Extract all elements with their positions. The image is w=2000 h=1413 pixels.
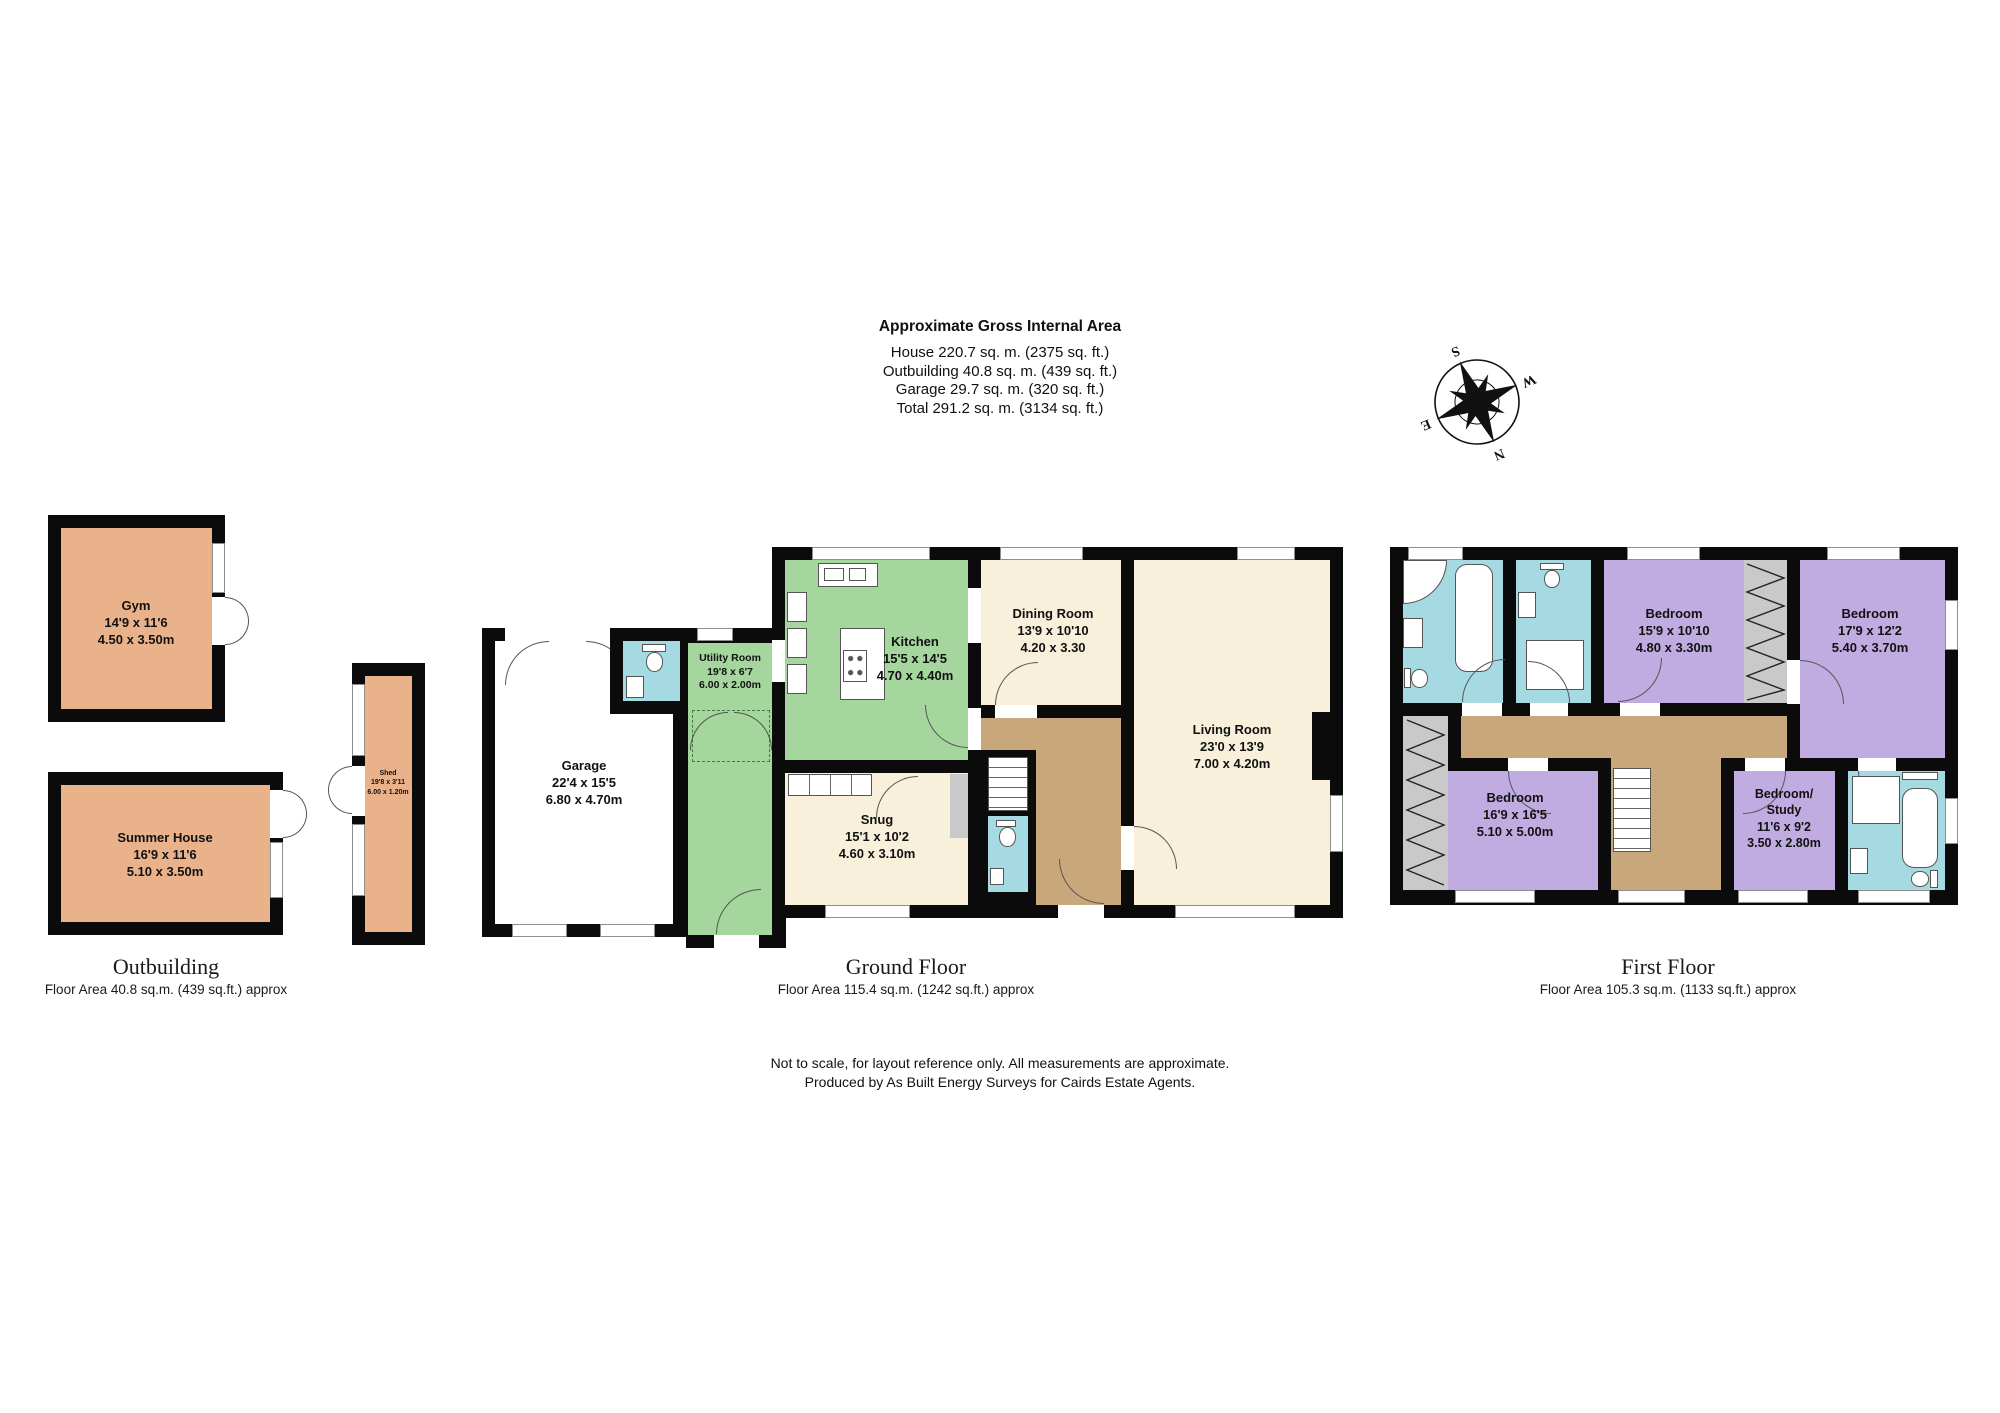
door-opening xyxy=(714,935,759,948)
room-dims-m: 6.00 x 2.00m xyxy=(670,679,790,693)
towel-rail-icon xyxy=(1902,772,1938,780)
landing-floor xyxy=(1461,716,1787,758)
door-arc xyxy=(225,621,249,645)
disclaimer-line1: Not to scale, for layout reference only.… xyxy=(600,1054,1400,1073)
compass-rose-icon: N E S W xyxy=(1407,332,1547,472)
kitchen-unit-icon xyxy=(787,592,807,622)
compass-e-label: E xyxy=(1418,415,1432,432)
toilet-icon xyxy=(1540,563,1564,570)
bedroom1-label: Bedroom 15'9 x 10'10 4.80 x 3.30m xyxy=(1594,606,1754,657)
door-arc xyxy=(283,814,307,838)
room-dims-ft: 13'9 x 10'10 xyxy=(973,623,1133,640)
door-opening xyxy=(1121,826,1134,870)
room-dims-ft: 14'9 x 11'6 xyxy=(56,615,216,632)
shed-label: Shed 19'8 x 3'11 6.00 x 1.20m xyxy=(358,769,418,797)
room-dims-ft: 15'1 x 10'2 xyxy=(797,829,957,846)
room-name: Utility Room xyxy=(670,652,790,666)
room-dims-m: 7.00 x 4.20m xyxy=(1152,756,1312,773)
compass-n-label: N xyxy=(1491,445,1506,463)
compass-w-label: W xyxy=(1519,371,1538,390)
kitchen-unit-icon xyxy=(787,628,807,658)
kitchen-unit-icon xyxy=(787,664,807,694)
window xyxy=(1000,547,1083,560)
area-garage: Garage 29.7 sq. m. (320 sq. ft.) xyxy=(700,381,1300,400)
room-name: Living Room xyxy=(1152,722,1312,739)
compass-s-label: S xyxy=(1449,342,1462,359)
sink-icon xyxy=(990,868,1004,885)
window xyxy=(1738,890,1808,903)
window xyxy=(1827,547,1900,560)
room-dims-m: 4.70 x 4.40m xyxy=(835,668,995,685)
gym-label: Gym 14'9 x 11'6 4.50 x 3.50m xyxy=(56,598,216,649)
room-dims-ft: 11'6 x 9'2 xyxy=(1714,819,1854,835)
room-name: Bedroom/ xyxy=(1714,786,1854,802)
room-dims-m: 4.60 x 3.10m xyxy=(797,846,957,863)
room-dims-ft: 22'4 x 15'5 xyxy=(504,775,664,792)
room-dims-m: 4.50 x 3.50m xyxy=(56,632,216,649)
first-floor-area-label: Floor Area 105.3 sq.m. (1133 sq.ft.) app… xyxy=(1468,982,1868,997)
room-name: Bedroom xyxy=(1594,606,1754,623)
room-name: Garage xyxy=(504,758,664,775)
toilet-icon xyxy=(1930,870,1938,888)
room-shed-floor xyxy=(365,676,412,932)
room-dims-ft: 19'8 x 3'11 xyxy=(358,778,418,787)
sink-bowl-icon xyxy=(849,568,866,581)
room-dims-m: 4.80 x 3.30m xyxy=(1594,640,1754,657)
outbuilding-area-label: Floor Area 40.8 sq.m. (439 sq.ft.) appro… xyxy=(0,982,332,997)
door-arc xyxy=(328,766,352,790)
front-door-opening xyxy=(1058,905,1104,918)
room-name: Snug xyxy=(797,812,957,829)
toilet-icon xyxy=(1411,669,1428,688)
room-dims-m: 5.40 x 3.70m xyxy=(1790,640,1950,657)
sink-icon xyxy=(1518,592,1536,618)
window xyxy=(697,628,733,641)
window xyxy=(600,924,655,937)
toilet-icon xyxy=(999,827,1016,847)
door-arc xyxy=(283,790,307,814)
room-dims-m: 5.10 x 3.50m xyxy=(85,864,245,881)
room-name: Bedroom xyxy=(1435,790,1595,807)
door-opening xyxy=(1858,758,1896,771)
window xyxy=(1330,795,1343,852)
room-dims-m: 4.20 x 3.30 xyxy=(973,640,1133,657)
room-name: Shed xyxy=(358,769,418,778)
window xyxy=(1455,890,1535,903)
window xyxy=(352,684,365,756)
stairs xyxy=(988,757,1028,811)
door-opening xyxy=(968,708,981,750)
window xyxy=(1618,890,1685,903)
sink-icon xyxy=(626,676,644,698)
window xyxy=(352,824,365,896)
door-opening xyxy=(1508,758,1548,771)
room-name: Gym xyxy=(56,598,216,615)
stairs xyxy=(1613,768,1651,852)
room-dims-ft: 23'0 x 13'9 xyxy=(1152,739,1312,756)
window xyxy=(1858,890,1930,903)
door-opening xyxy=(1787,660,1800,704)
utility-room-label: Utility Room 19'8 x 6'7 6.00 x 2.00m xyxy=(670,652,790,693)
chimney-breast xyxy=(1312,712,1343,780)
toilet-icon xyxy=(1544,570,1560,588)
window xyxy=(1408,547,1463,560)
ground-floor-section-label: Ground Floor xyxy=(706,954,1106,980)
room-dims-ft: 17'9 x 12'2 xyxy=(1790,623,1950,640)
room-dims-ft: 16'9 x 11'6 xyxy=(85,847,245,864)
shower-icon xyxy=(1852,776,1900,824)
door-opening xyxy=(270,790,283,838)
area-outbuilding: Outbuilding 40.8 sq. m. (439 sq. ft.) xyxy=(700,363,1300,382)
window xyxy=(212,543,225,593)
room-dims-m: 6.80 x 4.70m xyxy=(504,792,664,809)
steps xyxy=(788,774,872,796)
toilet-icon xyxy=(1404,668,1411,688)
garage-label: Garage 22'4 x 15'5 6.80 x 4.70m xyxy=(504,758,664,809)
door-arc xyxy=(328,790,352,814)
area-summary: House 220.7 sq. m. (2375 sq. ft.) Outbui… xyxy=(700,344,1300,418)
door-arc xyxy=(225,597,249,621)
window xyxy=(1237,547,1295,560)
kitchen-label: Kitchen 15'5 x 14'5 4.70 x 4.40m xyxy=(835,634,995,685)
room-dims-ft: 15'5 x 14'5 xyxy=(835,651,995,668)
toilet-icon xyxy=(642,644,666,652)
page-title: Approximate Gross Internal Area xyxy=(700,318,1300,336)
bath-icon xyxy=(1902,788,1938,868)
ground-floor-area-label: Floor Area 115.4 sq.m. (1242 sq.ft.) app… xyxy=(706,982,1106,997)
room-name: Summer House xyxy=(85,830,245,847)
dining-room-label: Dining Room 13'9 x 10'10 4.20 x 3.30 xyxy=(973,606,1133,657)
bedroom4-label: Bedroom/ Study 11'6 x 9'2 3.50 x 2.80m xyxy=(1714,786,1854,851)
bedroom2-label: Bedroom 17'9 x 12'2 5.40 x 3.70m xyxy=(1790,606,1950,657)
window xyxy=(812,547,930,560)
room-dims-ft: 16'9 x 16'5 xyxy=(1435,807,1595,824)
window xyxy=(512,924,567,937)
disclaimer-line2: Produced by As Built Energy Surveys for … xyxy=(600,1073,1400,1092)
bath-icon xyxy=(1455,564,1493,672)
door-opening xyxy=(1530,703,1568,716)
room-name: Study xyxy=(1714,802,1854,818)
floorplan-page: Approximate Gross Internal Area House 22… xyxy=(0,0,2000,1413)
room-name: Dining Room xyxy=(973,606,1133,623)
window xyxy=(1627,547,1700,560)
room-name: Kitchen xyxy=(835,634,995,651)
room-name: Bedroom xyxy=(1790,606,1950,623)
bedroom3-label: Bedroom 16'9 x 16'5 5.10 x 5.00m xyxy=(1435,790,1595,841)
door-opening xyxy=(1462,703,1502,716)
summer-house-label: Summer House 16'9 x 11'6 5.10 x 3.50m xyxy=(85,830,245,881)
room-bedroom2-floor xyxy=(1800,560,1945,758)
snug-label: Snug 15'1 x 10'2 4.60 x 3.10m xyxy=(797,812,957,863)
room-dims-m: 5.10 x 5.00m xyxy=(1435,824,1595,841)
window xyxy=(1175,905,1295,918)
toilet-icon xyxy=(996,820,1016,827)
outbuilding-section-label: Outbuilding xyxy=(0,954,332,980)
room-dims-m: 6.00 x 1.20m xyxy=(358,788,418,797)
first-floor-section-label: First Floor xyxy=(1468,954,1868,980)
living-room-label: Living Room 23'0 x 13'9 7.00 x 4.20m xyxy=(1152,722,1312,773)
door-opening xyxy=(995,705,1037,718)
room-dims-ft: 15'9 x 10'10 xyxy=(1594,623,1754,640)
window xyxy=(825,905,910,918)
toilet-icon xyxy=(1911,871,1929,887)
area-total: Total 291.2 sq. m. (3134 sq. ft.) xyxy=(700,400,1300,419)
window xyxy=(1945,798,1958,844)
toilet-icon xyxy=(646,652,663,672)
room-dims-ft: 19'8 x 6'7 xyxy=(670,666,790,680)
door-opening xyxy=(1620,703,1660,716)
sink-icon xyxy=(1403,618,1423,648)
room-dims-m: 3.50 x 2.80m xyxy=(1714,835,1854,851)
area-house: House 220.7 sq. m. (2375 sq. ft.) xyxy=(700,344,1300,363)
window xyxy=(270,842,283,898)
sink-icon xyxy=(1850,848,1868,874)
door-opening xyxy=(1745,758,1785,771)
sink-bowl-icon xyxy=(824,568,844,581)
